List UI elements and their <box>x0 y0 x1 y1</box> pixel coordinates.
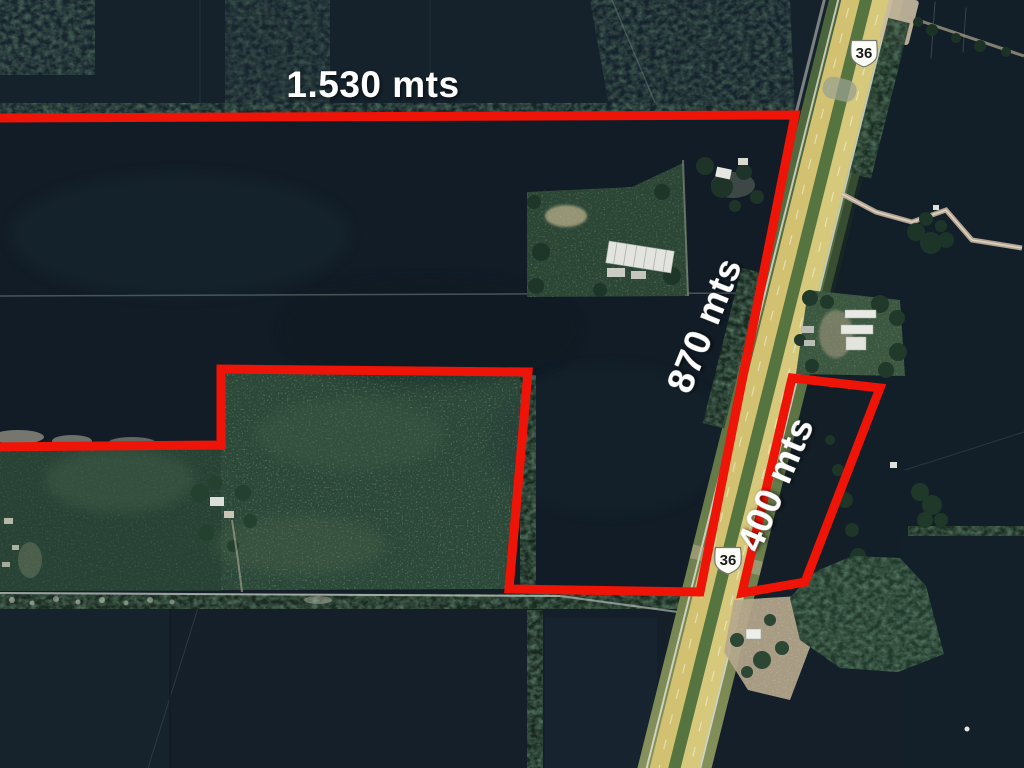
yard-ground <box>18 542 42 578</box>
farm-house <box>746 629 761 639</box>
crop-patch-texture <box>590 0 795 112</box>
farm-shed <box>224 511 234 518</box>
route-number: 36 <box>720 552 737 569</box>
shed-building <box>607 268 625 277</box>
route-number: 36 <box>856 45 873 62</box>
small-building <box>965 727 970 732</box>
east-farmstead <box>794 290 907 378</box>
small-building <box>4 518 13 524</box>
south-west-field <box>0 608 170 768</box>
pasture-light-patch <box>255 399 445 471</box>
pasture-light-patch <box>215 515 385 575</box>
shed-building <box>631 271 646 279</box>
field-mottle <box>10 173 350 297</box>
farm-house <box>210 497 224 506</box>
south-mid-field <box>545 618 657 768</box>
poultry-shed <box>845 310 876 318</box>
small-building <box>12 545 19 550</box>
map-canvas: 36 36 1.530 mts 870 mts 400 mts <box>0 0 1024 768</box>
tree-line-south-texture <box>527 610 543 768</box>
farm-shed <box>801 326 814 333</box>
label-top-width: 1.530 mts <box>286 64 459 105</box>
small-building <box>933 205 939 210</box>
small-building <box>2 562 10 567</box>
pasture-light-patch <box>45 448 195 512</box>
crop-patch-texture <box>0 0 95 75</box>
poultry-shed <box>841 325 873 334</box>
small-building <box>890 462 897 468</box>
satellite-parcel-map: 36 36 1.530 mts 870 mts 400 mts <box>0 0 1024 768</box>
sand-patch <box>545 205 587 227</box>
farm-shed <box>804 340 815 346</box>
poultry-shed <box>846 337 866 350</box>
farm-shed <box>738 158 748 165</box>
